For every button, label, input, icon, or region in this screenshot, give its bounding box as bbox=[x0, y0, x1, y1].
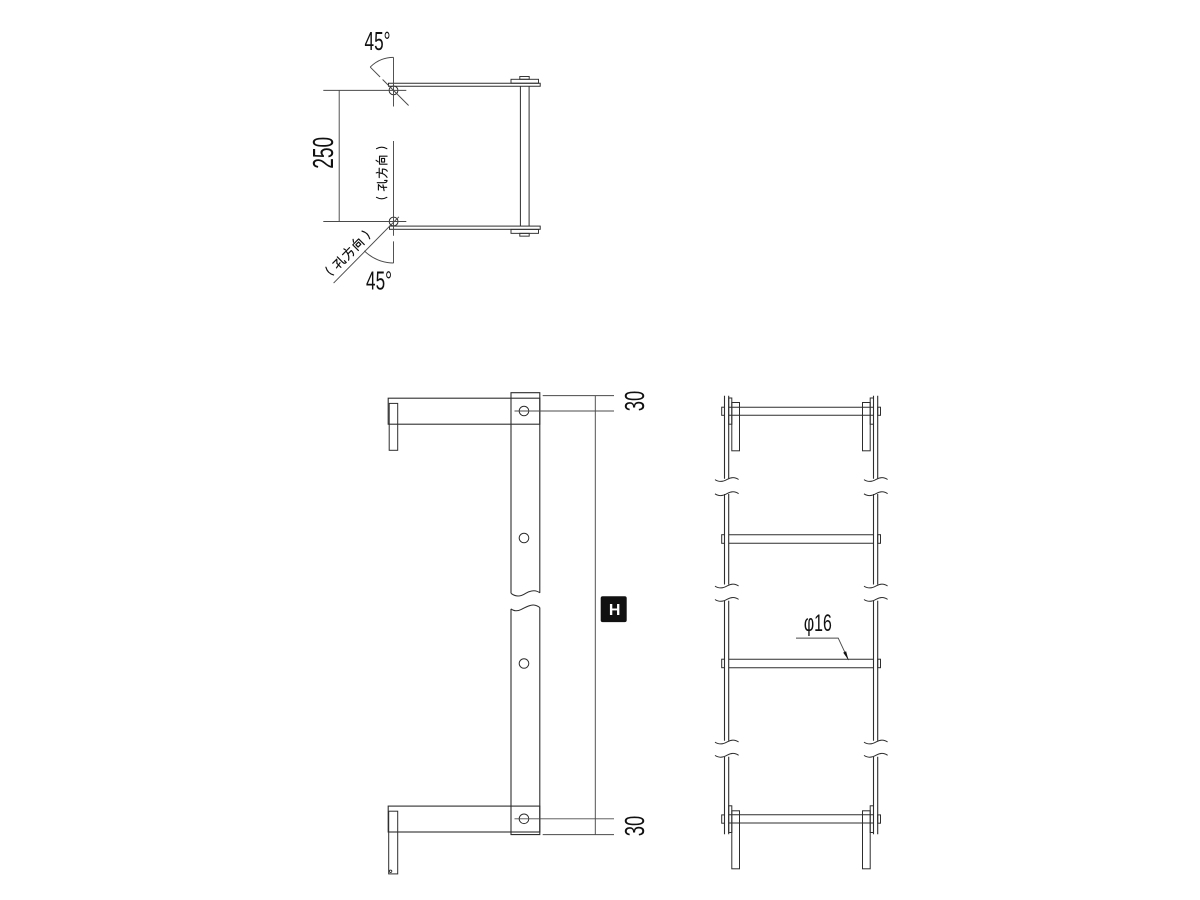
svg-text:30: 30 bbox=[620, 816, 651, 837]
svg-text:45°: 45° bbox=[366, 266, 392, 296]
svg-text:30: 30 bbox=[620, 391, 651, 412]
svg-text:φ16: φ16 bbox=[804, 611, 832, 637]
svg-text:250: 250 bbox=[308, 137, 340, 169]
svg-text:H: H bbox=[609, 602, 621, 619]
svg-text:45°: 45° bbox=[365, 26, 391, 56]
